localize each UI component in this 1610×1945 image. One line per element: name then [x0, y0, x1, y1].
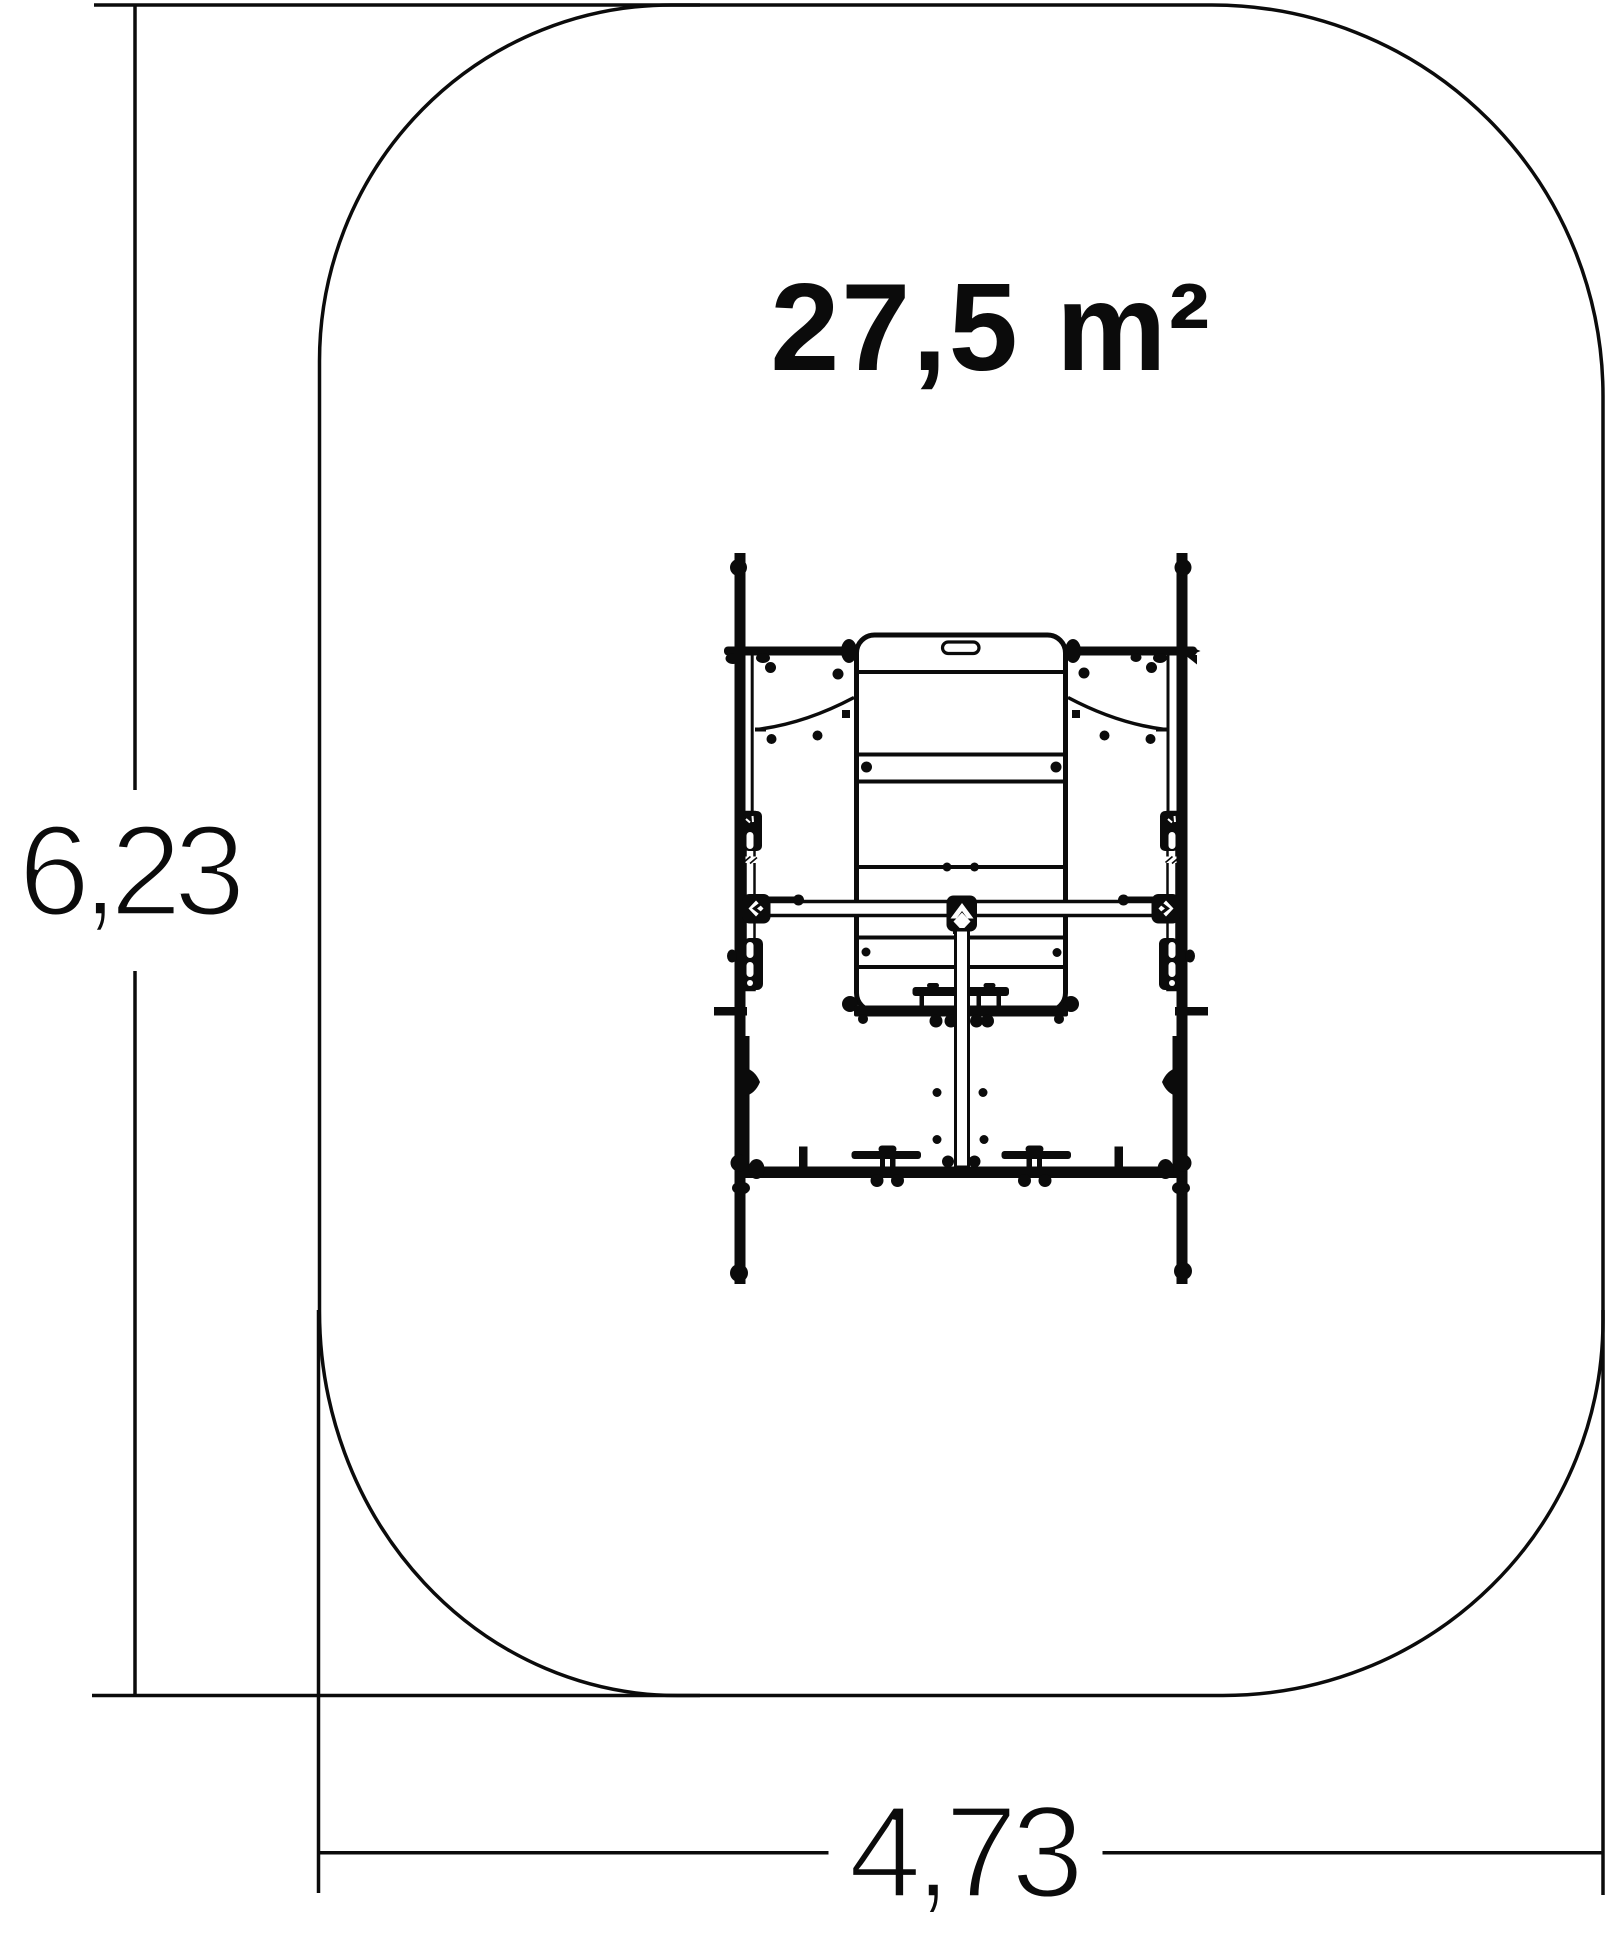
svg-text:4,73: 4,73	[849, 1778, 1080, 1925]
svg-text:6,23: 6,23	[18, 799, 240, 943]
svg-text:27,5 m²: 27,5 m²	[770, 259, 1211, 397]
